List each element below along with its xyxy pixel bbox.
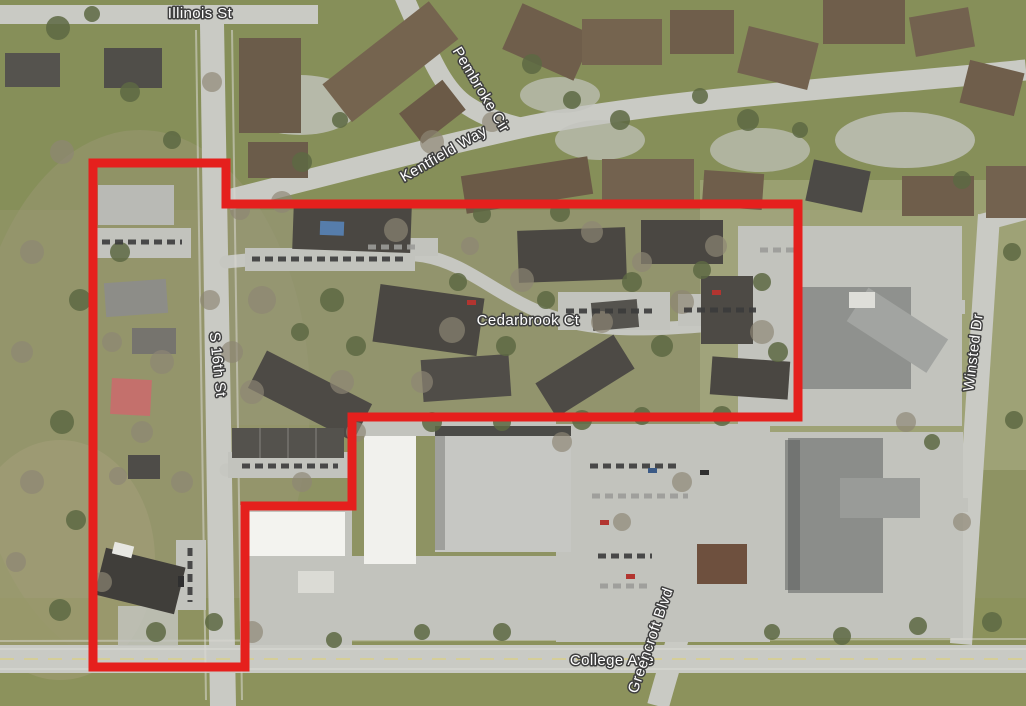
townhouse-row (232, 428, 344, 458)
big-box-building (435, 426, 571, 552)
street-label-illinois-st: Illinois St (168, 5, 233, 22)
red-roof-house (110, 378, 152, 416)
white-roof-building (364, 436, 416, 564)
aerial-map-canvas: Illinois St Pembroke Cir Kentfield Way C… (0, 0, 1026, 706)
road-illinois-st (0, 5, 318, 24)
gas-station-store (249, 512, 345, 556)
aerial-map: Illinois St Pembroke Cir Kentfield Way C… (0, 0, 1026, 706)
street-label-cedarbrook-ct: Cedarbrook Ct (477, 312, 580, 329)
